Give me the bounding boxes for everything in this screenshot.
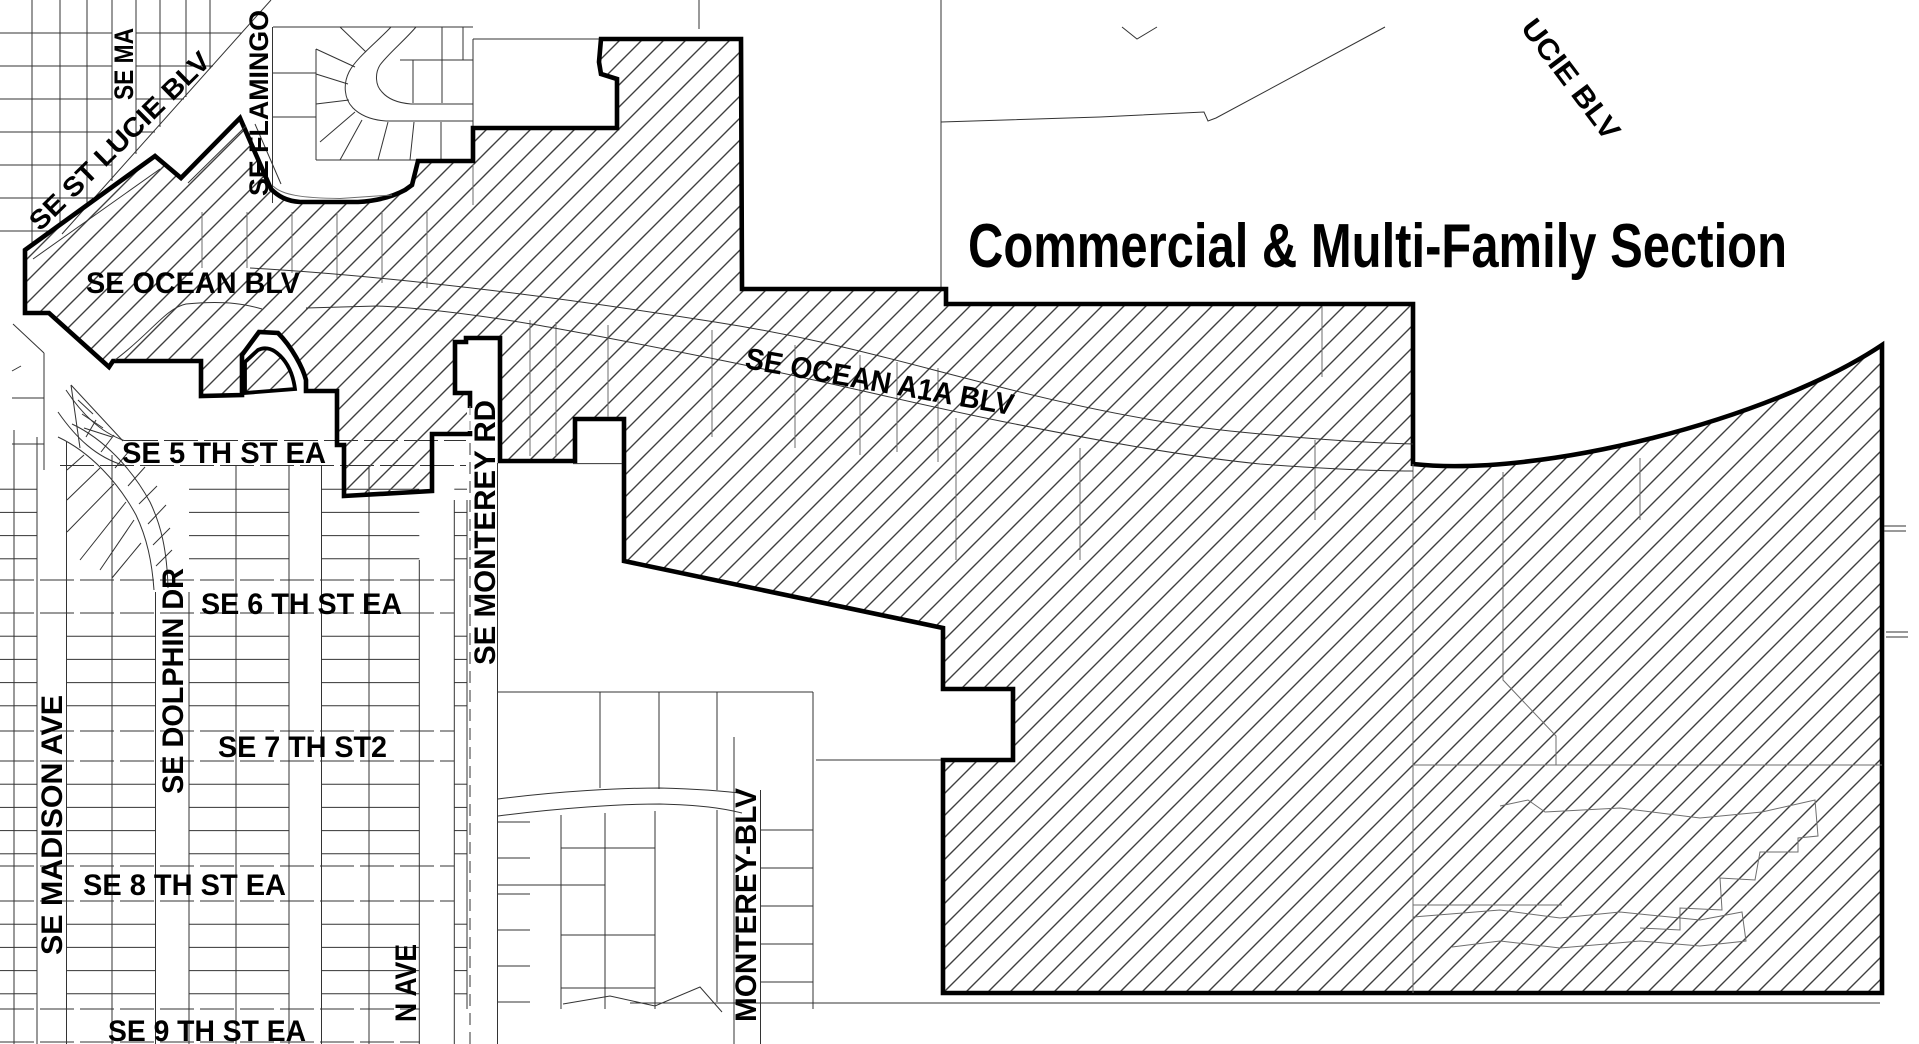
svg-text:N AVE: N AVE — [390, 944, 423, 1022]
svg-text:SE FLAMINGO: SE FLAMINGO — [244, 10, 274, 196]
svg-text:SE 5 TH ST EA: SE 5 TH ST EA — [122, 437, 326, 470]
svg-text:SE MADISON AVE: SE MADISON AVE — [36, 695, 69, 955]
svg-text:SE 7 TH ST2: SE 7 TH ST2 — [218, 731, 387, 764]
svg-text:SE MONTEREY RD: SE MONTEREY RD — [469, 400, 502, 665]
svg-text:SE OCEAN BLV: SE OCEAN BLV — [86, 267, 300, 300]
svg-text:SE 8 TH ST EA: SE 8 TH ST EA — [83, 869, 286, 902]
svg-text:SE 6 TH ST EA: SE 6 TH ST EA — [201, 588, 402, 621]
svg-text:SE DOLPHIN DR: SE DOLPHIN DR — [157, 568, 190, 794]
svg-text:Commercial & Multi-Family Sect: Commercial & Multi-Family Section — [968, 212, 1787, 281]
svg-text:SE MA: SE MA — [109, 28, 139, 100]
svg-text:SE 9 TH ST EA: SE 9 TH ST EA — [108, 1015, 306, 1044]
svg-text:MONTEREY-BLV: MONTEREY-BLV — [730, 788, 763, 1022]
